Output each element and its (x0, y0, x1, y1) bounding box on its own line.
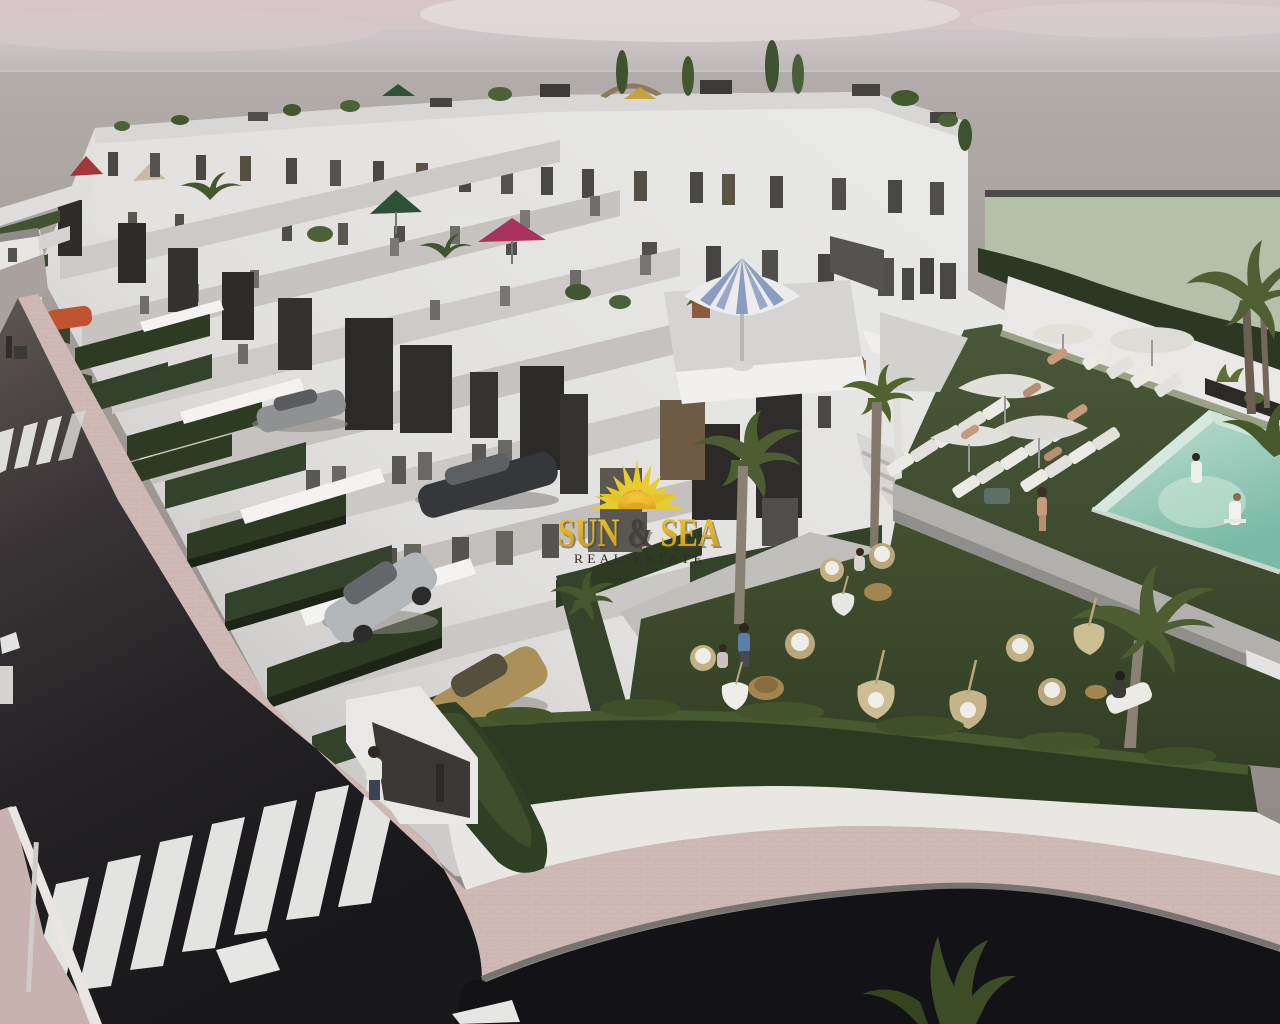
svg-text:SUN & SEA: SUN & SEA (558, 510, 720, 555)
svg-text:REAL ESTATE: REAL ESTATE (574, 551, 706, 566)
